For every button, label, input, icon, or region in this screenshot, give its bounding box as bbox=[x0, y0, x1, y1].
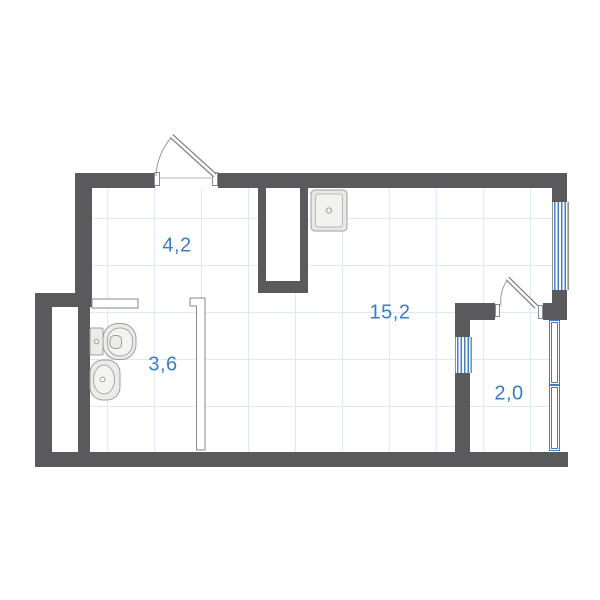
room-label-living: 15,2 bbox=[370, 302, 411, 325]
balcony-door-swing-icon bbox=[501, 279, 537, 308]
room-label-hall: 4,2 bbox=[162, 235, 191, 258]
floor-plan: 4,2 15,2 3,6 2,0 bbox=[0, 0, 600, 600]
room-label-balcony: 2,0 bbox=[494, 383, 523, 406]
kitchen-sink-icon bbox=[311, 190, 347, 231]
toilet-icon bbox=[90, 324, 136, 360]
partition-bathroom-living bbox=[190, 298, 205, 450]
entrance-door-swing-icon bbox=[156, 136, 215, 178]
room-label-bathroom: 3,6 bbox=[148, 354, 177, 377]
washbasin-icon bbox=[90, 360, 120, 400]
partition-bathroom-lintel bbox=[92, 299, 138, 308]
